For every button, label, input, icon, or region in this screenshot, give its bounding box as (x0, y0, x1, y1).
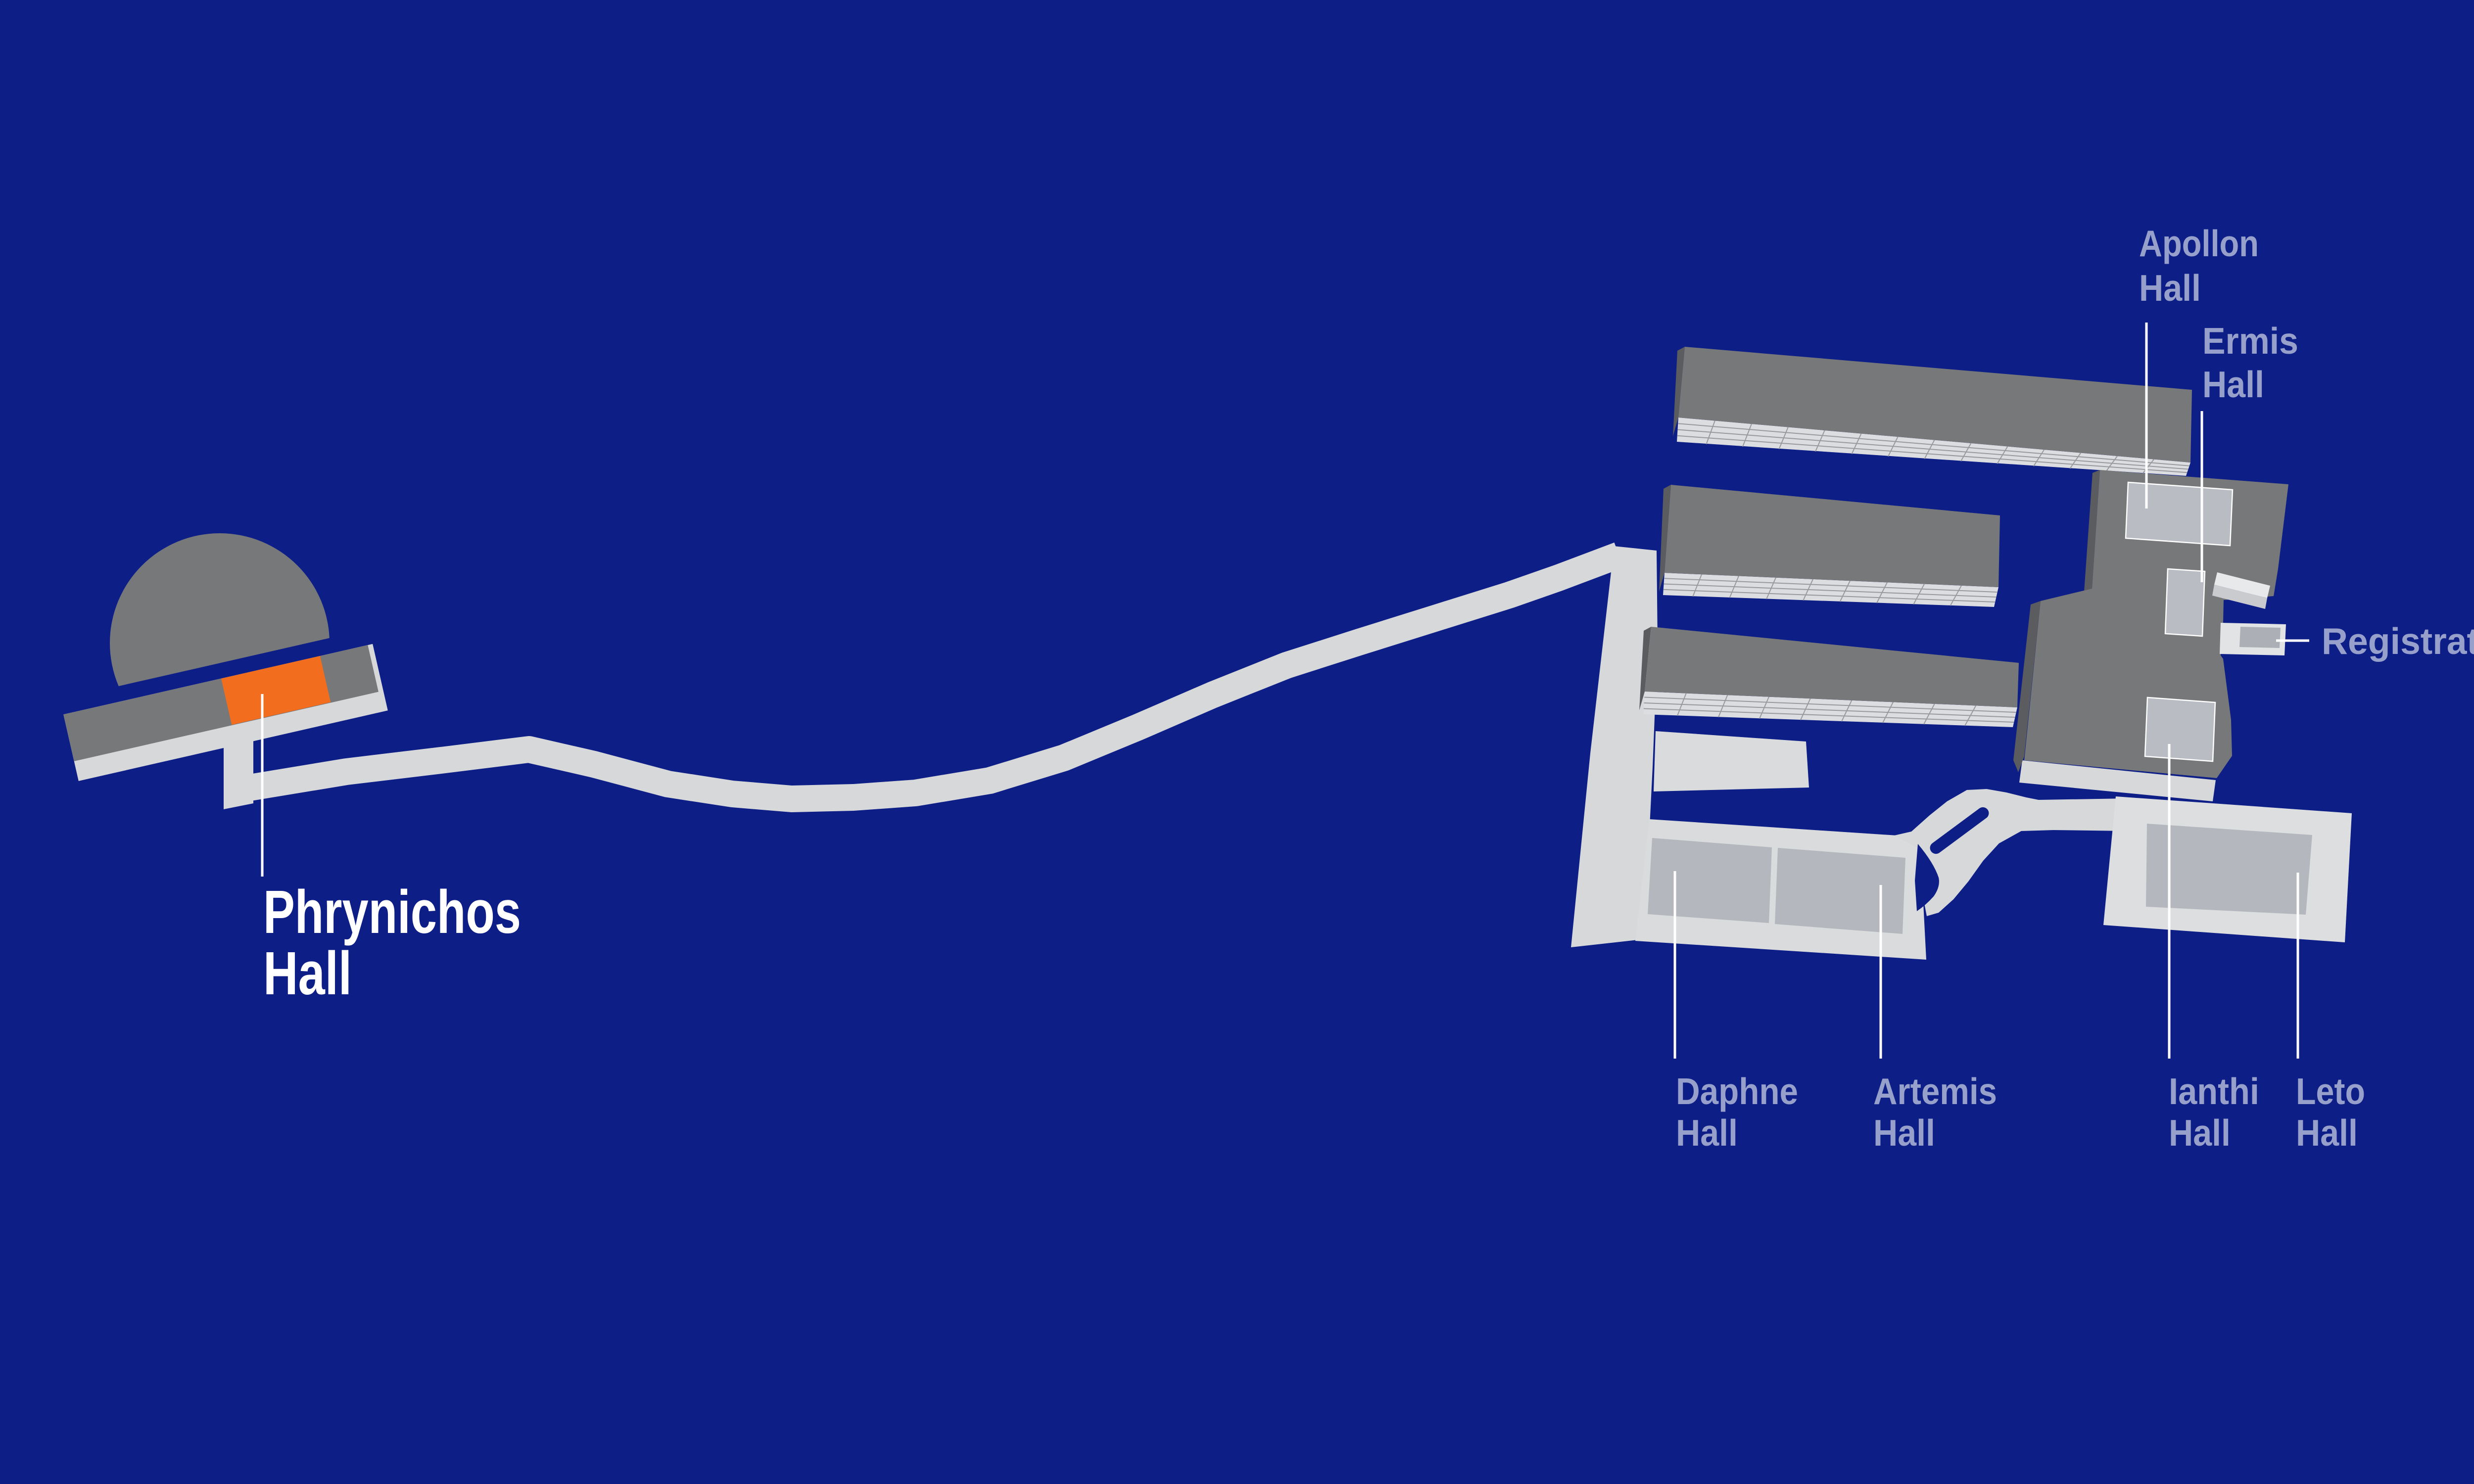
svg-text:Hall: Hall (1873, 1112, 1935, 1154)
svg-text:Registration: Registration (2322, 620, 2474, 662)
svg-text:Phrynichos: Phrynichos (263, 879, 521, 946)
svg-text:Hall: Hall (1676, 1112, 1738, 1154)
svg-text:Hall: Hall (2202, 364, 2264, 405)
svg-text:Hall: Hall (263, 940, 352, 1008)
svg-text:Artemis: Artemis (1873, 1070, 1997, 1112)
svg-text:Ermis: Ermis (2202, 320, 2298, 362)
svg-text:Hall: Hall (2169, 1112, 2231, 1154)
svg-text:Hall: Hall (2296, 1112, 2358, 1154)
svg-text:Apollon: Apollon (2139, 223, 2259, 264)
svg-text:Leto: Leto (2296, 1070, 2365, 1112)
svg-text:Daphne: Daphne (1676, 1070, 1798, 1112)
svg-text:Ianthi: Ianthi (2169, 1070, 2259, 1112)
svg-text:Hall: Hall (2139, 267, 2201, 309)
